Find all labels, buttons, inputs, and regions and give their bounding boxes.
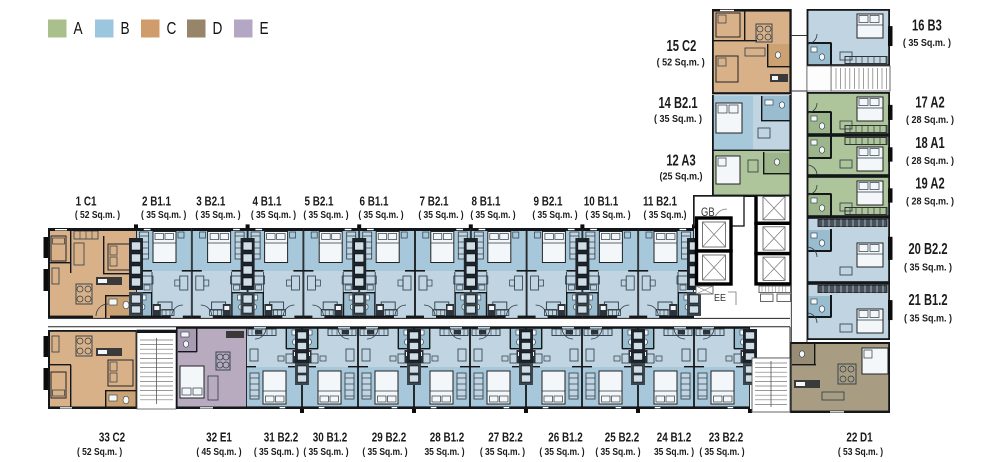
svg-text:28 B1.2: 28 B1.2: [430, 431, 465, 445]
svg-text:15 C2: 15 C2: [667, 37, 697, 54]
svg-text:( 52 Sq.m. ): ( 52 Sq.m. ): [77, 446, 122, 457]
svg-text:( 35 Sq.m. ): ( 35 Sq.m. ): [254, 446, 299, 457]
svg-text:( 35 Sq.m. ): ( 35 Sq.m. ): [699, 446, 744, 457]
svg-text:( 35 Sq.m. ): ( 35 Sq.m. ): [904, 313, 952, 325]
svg-text:27 B2.2: 27 B2.2: [488, 431, 523, 445]
svg-text:22 D1: 22 D1: [846, 431, 873, 445]
svg-text:16 B3: 16 B3: [912, 17, 942, 34]
svg-text:( 53 Sq.m. ): ( 53 Sq.m. ): [838, 446, 883, 457]
svg-text:7 B2.1: 7 B2.1: [419, 195, 449, 209]
svg-text:33 C2: 33 C2: [99, 431, 125, 445]
svg-text:( 35 Sq.m. ): ( 35 Sq.m. ): [358, 209, 403, 220]
svg-text:( 35 Sq.m. ): ( 35 Sq.m. ): [362, 446, 407, 457]
svg-text:( 35 Sq.m. ): ( 35 Sq.m. ): [904, 262, 952, 274]
svg-text:( 28 Sq.m. ): ( 28 Sq.m. ): [906, 155, 954, 167]
svg-text:8 B1.1: 8 B1.1: [471, 195, 501, 209]
svg-text:30 B1.2: 30 B1.2: [313, 431, 348, 445]
svg-text:14 B2.1: 14 B2.1: [658, 94, 697, 111]
svg-text:5 B2.1: 5 B2.1: [304, 195, 334, 209]
svg-text:21 B1.2: 21 B1.2: [908, 291, 947, 308]
svg-text:( 28 Sq.m. ): ( 28 Sq.m. ): [906, 196, 954, 208]
svg-text:A: A: [74, 20, 84, 39]
svg-text:26 B1.2: 26 B1.2: [548, 431, 583, 445]
svg-text:( 35 Sq.m.): ( 35 Sq.m.): [644, 209, 687, 220]
svg-text:( 28 Sq.m. ): ( 28 Sq.m. ): [906, 114, 954, 126]
svg-text:( 35 Sq.m. ): ( 35 Sq.m. ): [195, 209, 240, 220]
svg-text:( 35 Sq.m. ): ( 35 Sq.m. ): [303, 209, 348, 220]
svg-text:6 B1.1: 6 B1.1: [359, 195, 389, 209]
svg-text:9 B2.1: 9 B2.1: [533, 195, 563, 209]
svg-text:( 52 Sq.m. ): ( 52 Sq.m. ): [75, 209, 120, 220]
svg-text:( 35 Sq.m. ): ( 35 Sq.m. ): [303, 446, 348, 457]
svg-text:( 35 Sq.m. ): ( 35 Sq.m. ): [585, 209, 630, 220]
svg-text:( 35 Sq.m. ): ( 35 Sq.m. ): [903, 37, 951, 49]
svg-text:10 B1.1: 10 B1.1: [584, 195, 619, 209]
svg-text:(25 Sq.m.): (25 Sq.m.): [659, 171, 702, 183]
svg-text:29 B2.2: 29 B2.2: [372, 431, 407, 445]
svg-text:( 35 Sq.m. ): ( 35 Sq.m. ): [470, 209, 515, 220]
svg-text:20 B2.2: 20 B2.2: [908, 240, 947, 257]
svg-text:1 C1: 1 C1: [76, 195, 97, 209]
svg-text:( 35 Sq.m. ): ( 35 Sq.m. ): [539, 446, 584, 457]
svg-text:( 52 Sq.m. ): ( 52 Sq.m. ): [657, 57, 705, 69]
svg-text:D: D: [213, 20, 223, 39]
svg-text:11 B2.1: 11 B2.1: [643, 195, 678, 209]
svg-text:23 B2.2: 23 B2.2: [709, 431, 744, 445]
svg-text:35 Sq.m. ): 35 Sq.m. ): [424, 446, 464, 457]
svg-text:( 45 Sq.m. ): ( 45 Sq.m. ): [196, 446, 241, 457]
svg-text:( 35 Sq.m. ): ( 35 Sq.m. ): [654, 113, 702, 125]
svg-text:E: E: [260, 20, 269, 39]
svg-text:( 35 Sq.m. ): ( 35 Sq.m. ): [141, 209, 186, 220]
svg-text:( 35 Sq.m. ): ( 35 Sq.m. ): [418, 209, 463, 220]
svg-text:( 35 Sq.m. ): ( 35 Sq.m. ): [595, 446, 640, 457]
svg-text:2 B1.1: 2 B1.1: [142, 195, 172, 209]
svg-text:B: B: [121, 20, 130, 39]
svg-text:25 B2.2: 25 B2.2: [605, 431, 640, 445]
svg-text:32 E1: 32 E1: [206, 431, 232, 445]
svg-text:12 A3: 12 A3: [666, 152, 696, 169]
svg-text:31 B2.2: 31 B2.2: [264, 431, 299, 445]
svg-text:EE: EE: [714, 292, 726, 304]
svg-text:( 35 Sq.m. ): ( 35 Sq.m. ): [532, 209, 577, 220]
svg-text:3 B2.1: 3 B2.1: [196, 195, 226, 209]
svg-text:C: C: [167, 20, 177, 39]
svg-text:24 B1.2: 24 B1.2: [657, 431, 692, 445]
svg-text:19 A2: 19 A2: [915, 175, 944, 192]
svg-text:18 A1: 18 A1: [915, 134, 945, 151]
svg-text:4 B1.1: 4 B1.1: [252, 195, 282, 209]
svg-text:35 Sq.m. ): 35 Sq.m. ): [654, 446, 694, 457]
svg-text:( 35 Sq.m. ): ( 35 Sq.m. ): [251, 209, 296, 220]
svg-text:( 35 Sq.m. ): ( 35 Sq.m. ): [480, 446, 525, 457]
svg-text:17 A2: 17 A2: [915, 94, 944, 111]
